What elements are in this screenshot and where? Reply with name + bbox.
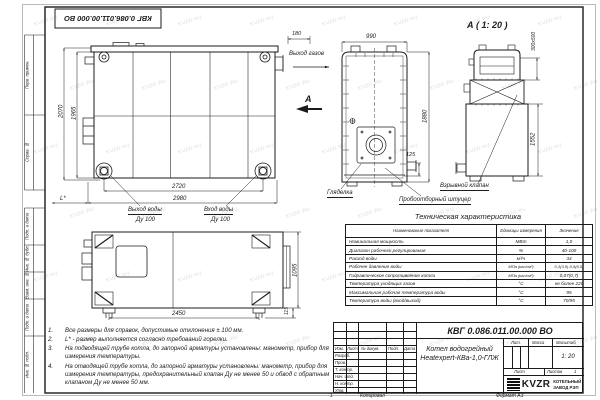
tb-sheet-label: Лист (514, 370, 525, 374)
kvzr-company-name: КОТЕЛЬНЫЙ ЗАВОД РЭП (553, 379, 581, 389)
row-name: Диапазон рабочего регулирования (346, 246, 497, 254)
margin-label-inv-dubl: Инв. № дубл. (23, 245, 32, 272)
row-units: °С (497, 288, 546, 296)
dim-l-star: L* (60, 196, 66, 202)
kvzr-logo-icon (507, 378, 520, 391)
note-number: 2. (48, 336, 65, 344)
tb-mass-label: Масса (532, 341, 544, 345)
tb-product-name: Котел водогрейный Heatexpert-КВа-1,0-ГЛЖ (416, 339, 504, 394)
dim-1880: 1880 (421, 94, 430, 138)
label-explosion-valve: Взрывной клапан (440, 183, 489, 191)
label-sampling-fitting: Пробоотборный штуцер (399, 197, 471, 205)
note-number: 3. (48, 345, 65, 361)
label-gas-outlet: Выход газов (289, 51, 324, 57)
margin-label-podp-data-1: Подп. и дата (23, 208, 32, 245)
tb-col-data: Дата (404, 347, 415, 351)
note-text: На подводящей трубе котла, до запорной а… (65, 345, 334, 361)
kvzr-company-line1: КОТЕЛЬНЫЙ (553, 379, 581, 384)
title-block: Изм. Лист № докум. Подп. Дата Разраб. Пр… (333, 322, 583, 393)
tb-logo-area: KVZR КОТЕЛЬНЫЙ ЗАВОД РЭП (504, 375, 584, 394)
dim-300x500: 300х500 (530, 27, 539, 55)
note-number: 1. (48, 327, 65, 335)
note-item: 4.На отводящей трубе котла, до запорной … (48, 363, 334, 387)
footer-copy-label: Копировал (360, 394, 385, 399)
note-text: На отводящей трубе котла, до запорной ар… (65, 363, 334, 387)
note-number: 4. (48, 363, 65, 387)
tb-role: Утв. (335, 389, 345, 393)
row-value: 70/95 (546, 297, 592, 305)
tb-role: Нач. отд. (335, 375, 354, 379)
row-name: Температура уходящих газов (346, 280, 497, 288)
dim-1965: 1965 (70, 88, 79, 138)
label-view-a: А (305, 95, 312, 104)
note-item: 2.L* - размер выполняется согласно требо… (48, 336, 334, 344)
margin-label-vzam-inv: Взам. инв. № (23, 272, 32, 299)
label-water-inlet-dn: Ду 100 (211, 217, 230, 223)
tb-role: Разраб. (335, 354, 350, 358)
tb-doc-number: КВГ 0.086.011.00.000 ВО (416, 323, 584, 339)
label-water-inlet: Вход воды (204, 207, 233, 215)
row-name: Рабочее давление воды (346, 263, 497, 271)
tech-characteristics-table: Наименование показателя Единицы измерени… (345, 224, 593, 306)
row-units: МПа (кгс/см²) (497, 263, 546, 271)
kvzr-company-line2: ЗАВОД РЭП (553, 385, 581, 390)
row-value: 34 (546, 255, 592, 263)
row-name: Гидравлическое сопротивление котла (346, 272, 497, 280)
label-sight-glass: Гляделка (327, 190, 353, 198)
tb-col-izm: Изм. (335, 347, 344, 351)
row-units: °С (497, 280, 546, 288)
row-name: Температура воды (вход/выход) (346, 297, 497, 305)
row-units: МВт (497, 238, 546, 246)
tb-product-name-line1: Котел водогрейный (416, 346, 503, 353)
dim-125: 125 (406, 153, 415, 159)
dim-1095: 1095 (291, 252, 300, 288)
notes-list: 1.Все размеры для справок, допустимые от… (48, 327, 334, 388)
detail-view-title: А ( 1: 20 ) (467, 21, 508, 30)
margin-label-sprav-no: Справ. № (23, 115, 32, 190)
tb-sheets-label: Листов (547, 370, 562, 374)
tech-table-title: Техническая характеристика (345, 213, 591, 221)
row-units: °С (497, 297, 546, 305)
drawing-sheet: { "watermark": "KVZR.RU", "frame": { "st… (0, 0, 600, 400)
margin-label-inv-podl: Инв. № подл. (23, 336, 32, 393)
kvzr-logo-text: KVZR (522, 379, 550, 390)
row-units: МПа (кгс/см²) (497, 272, 546, 280)
tb-role: Н. контр. (335, 382, 354, 386)
tb-scale-value: 1: 20 (552, 346, 584, 368)
margin-label-podp-data-2: Подп. и дата (23, 299, 32, 336)
footer-sheet-num: 1 (330, 394, 333, 399)
dim-115: 115 (283, 303, 292, 319)
dim-2070: 2070 (57, 82, 66, 140)
note-item: 3.На подводящей трубе котла, до запорной… (48, 345, 334, 361)
row-value: 1,0 (546, 238, 592, 246)
row-name: Максимальная рабочая температура воды (346, 288, 497, 296)
row-units: % (497, 246, 546, 254)
footer-format-label: Формат А3 (496, 394, 523, 399)
tb-scale-label: Масштаб (556, 341, 576, 345)
note-text: L* - размер выполняется согласно требова… (65, 336, 334, 344)
tb-sheets-value: 1 (574, 370, 576, 374)
tb-lit-label: Лит. (511, 341, 521, 345)
tb-col-podp: Подп. (388, 347, 399, 351)
row-value: 40-100 (546, 246, 592, 254)
dim-1552: 1552 (529, 122, 538, 156)
col-header-units: Единицы измерения (497, 225, 546, 238)
row-value: 0,07(0,7) (546, 272, 592, 280)
tb-col-list: Лист (347, 347, 358, 351)
tb-product-name-line2: Heatexpert-КВа-1,0-ГЛЖ (416, 355, 503, 362)
dim-990: 990 (366, 34, 376, 40)
dim-180: 180 (292, 32, 301, 38)
row-value: 95 (546, 288, 592, 296)
col-header-value: Значение (546, 225, 592, 238)
tb-col-doc: № докум. (361, 347, 379, 351)
tb-role: Пров. (335, 361, 346, 365)
label-water-outlet: Выход воды (128, 207, 162, 215)
dim-2720: 2720 (172, 184, 185, 190)
label-water-outlet-dn: Ду 100 (136, 217, 155, 223)
row-name: Расход воды (346, 255, 497, 263)
row-name: Номинальная мощность (346, 238, 497, 246)
top-stamp-doc-number: КВГ 0.086.011.00.000 ВО (55, 9, 161, 28)
tb-role: Т. контр. (335, 368, 353, 372)
note-item: 1.Все размеры для справок, допустимые от… (48, 327, 334, 335)
col-header-name: Наименование показателя (346, 225, 497, 238)
row-value: не более 220 (546, 280, 592, 288)
note-text: Все размеры для справок, допустимые откл… (65, 327, 334, 335)
row-units: м³/ч (497, 255, 546, 263)
margin-label-perv-primen: Перв. примен. (23, 35, 32, 115)
dim-2450: 2450 (172, 311, 185, 317)
dim-2980: 2980 (173, 196, 186, 202)
row-value: 0,3(3,0)-0,6(6,0) (546, 263, 592, 271)
